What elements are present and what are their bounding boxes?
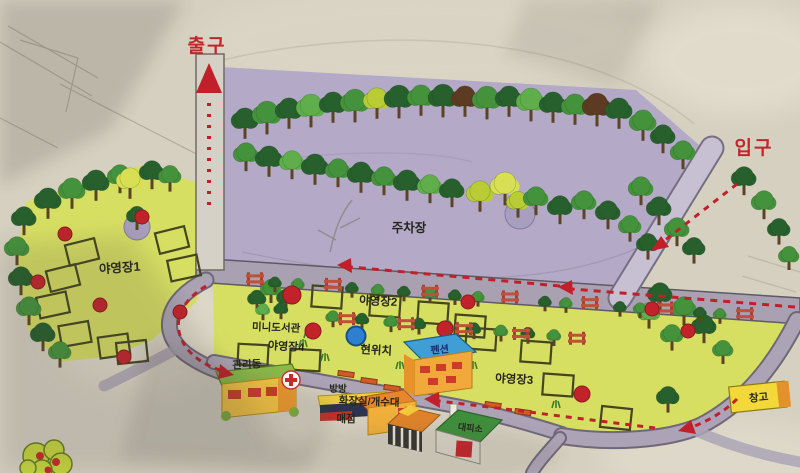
site-marker-dot xyxy=(283,286,301,304)
site-marker-dot xyxy=(135,210,149,224)
site-marker-dot xyxy=(305,323,321,339)
site-marker-dot xyxy=(461,295,475,309)
site-marker-dot xyxy=(58,227,72,241)
label-parking: 주차장 xyxy=(392,220,427,235)
current-location-marker xyxy=(347,327,366,346)
site-marker-dot xyxy=(574,386,590,402)
label-entrance: 입구 xyxy=(735,137,774,159)
site-marker-dot xyxy=(645,302,659,316)
campground-map: 출구 입구 주차장 야영장1 야영장2 미니도서관 야영장4 현위치 펜션 야영… xyxy=(0,0,800,473)
label-store: 매점 xyxy=(336,412,355,425)
label-mini-library: 미니도서관 xyxy=(252,320,301,335)
site-marker-dot xyxy=(681,324,695,338)
label-exit: 출구 xyxy=(188,35,227,57)
campground-map-photo: 출구 입구 주차장 야영장1 야영장2 미니도서관 야영장4 현위치 펜션 야영… xyxy=(0,0,800,473)
label-warehouse: 창고 xyxy=(748,390,769,405)
label-trampoline: 방방 xyxy=(329,383,347,395)
label-toilet-sink: 화장실/개수대 xyxy=(338,394,399,409)
building-pension xyxy=(404,334,476,396)
